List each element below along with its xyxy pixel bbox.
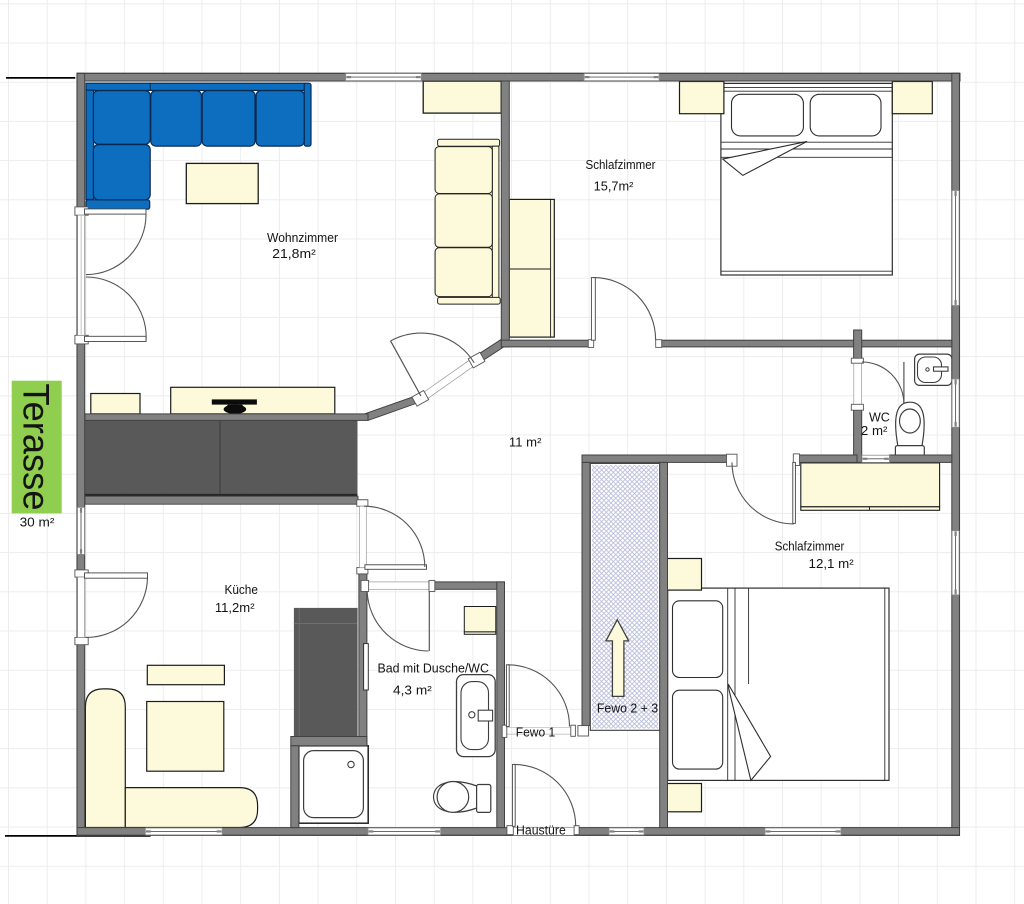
svg-text:Schlafzimmer: Schlafzimmer [775, 539, 845, 554]
svg-text:15,7m²: 15,7m² [594, 179, 634, 194]
svg-text:21,8m²: 21,8m² [272, 246, 316, 261]
svg-text:Bad mit Dusche/WC: Bad mit Dusche/WC [377, 660, 489, 675]
svg-text:11,2m²: 11,2m² [215, 600, 255, 615]
svg-text:Küche: Küche [224, 582, 258, 597]
svg-text:2 m²: 2 m² [861, 423, 888, 438]
svg-text:Haustüre: Haustüre [516, 822, 566, 837]
svg-text:12,1 m²: 12,1 m² [809, 556, 855, 571]
svg-text:Fewo 1: Fewo 1 [516, 724, 556, 739]
svg-text:30 m²: 30 m² [20, 515, 55, 530]
svg-text:11 m²: 11 m² [509, 434, 542, 449]
svg-text:4,3 m²: 4,3 m² [393, 682, 432, 697]
svg-text:Schlafzimmer: Schlafzimmer [586, 157, 657, 172]
svg-text:Fewo 2 + 3: Fewo 2 + 3 [597, 700, 658, 715]
svg-text:Wohnzimmer: Wohnzimmer [267, 230, 339, 245]
svg-text:Terasse: Terasse [16, 384, 57, 511]
